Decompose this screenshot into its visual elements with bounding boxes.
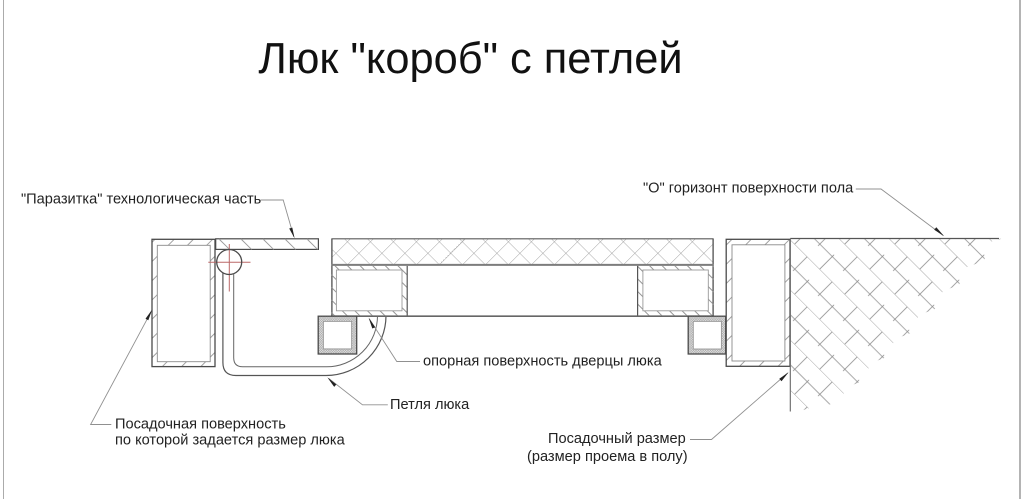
svg-text:(размер проема в полу): (размер проема в полу) (527, 449, 688, 465)
svg-text:по которой задается размер люк: по которой задается размер люка (115, 433, 346, 449)
svg-text:Посадочная поверхность: Посадочная поверхность (115, 417, 286, 433)
svg-text:Посадочный размер: Посадочный размер (548, 431, 686, 447)
svg-text:"Паразитка" технологическая ча: "Паразитка" технологическая часть (21, 192, 261, 208)
svg-text:опорная поверхность дверцы люк: опорная поверхность дверцы люка (423, 354, 663, 370)
svg-text:Петля люка: Петля люка (390, 397, 470, 413)
svg-text:"О" горизонт поверхности пола: "О" горизонт поверхности пола (643, 181, 854, 197)
svg-text:Люк "короб" с петлей: Люк "короб" с петлей (258, 35, 682, 83)
